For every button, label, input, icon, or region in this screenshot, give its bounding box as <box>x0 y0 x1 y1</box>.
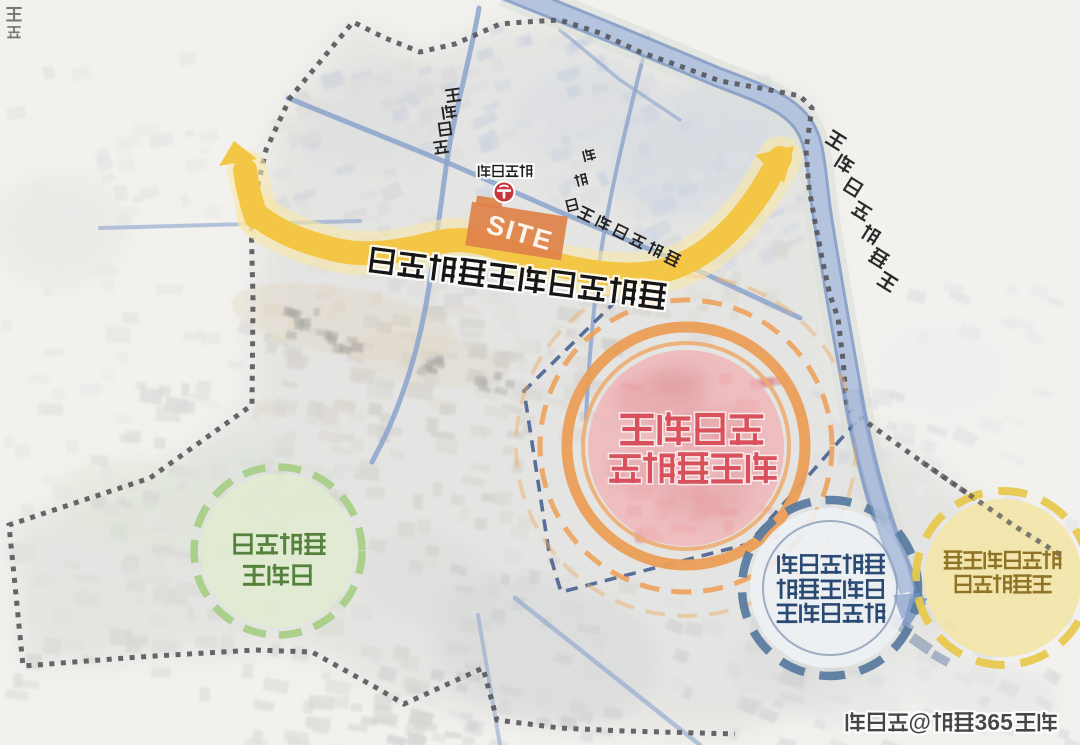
svg-text:365: 365 <box>975 709 1014 735</box>
svg-text:@: @ <box>909 709 931 735</box>
